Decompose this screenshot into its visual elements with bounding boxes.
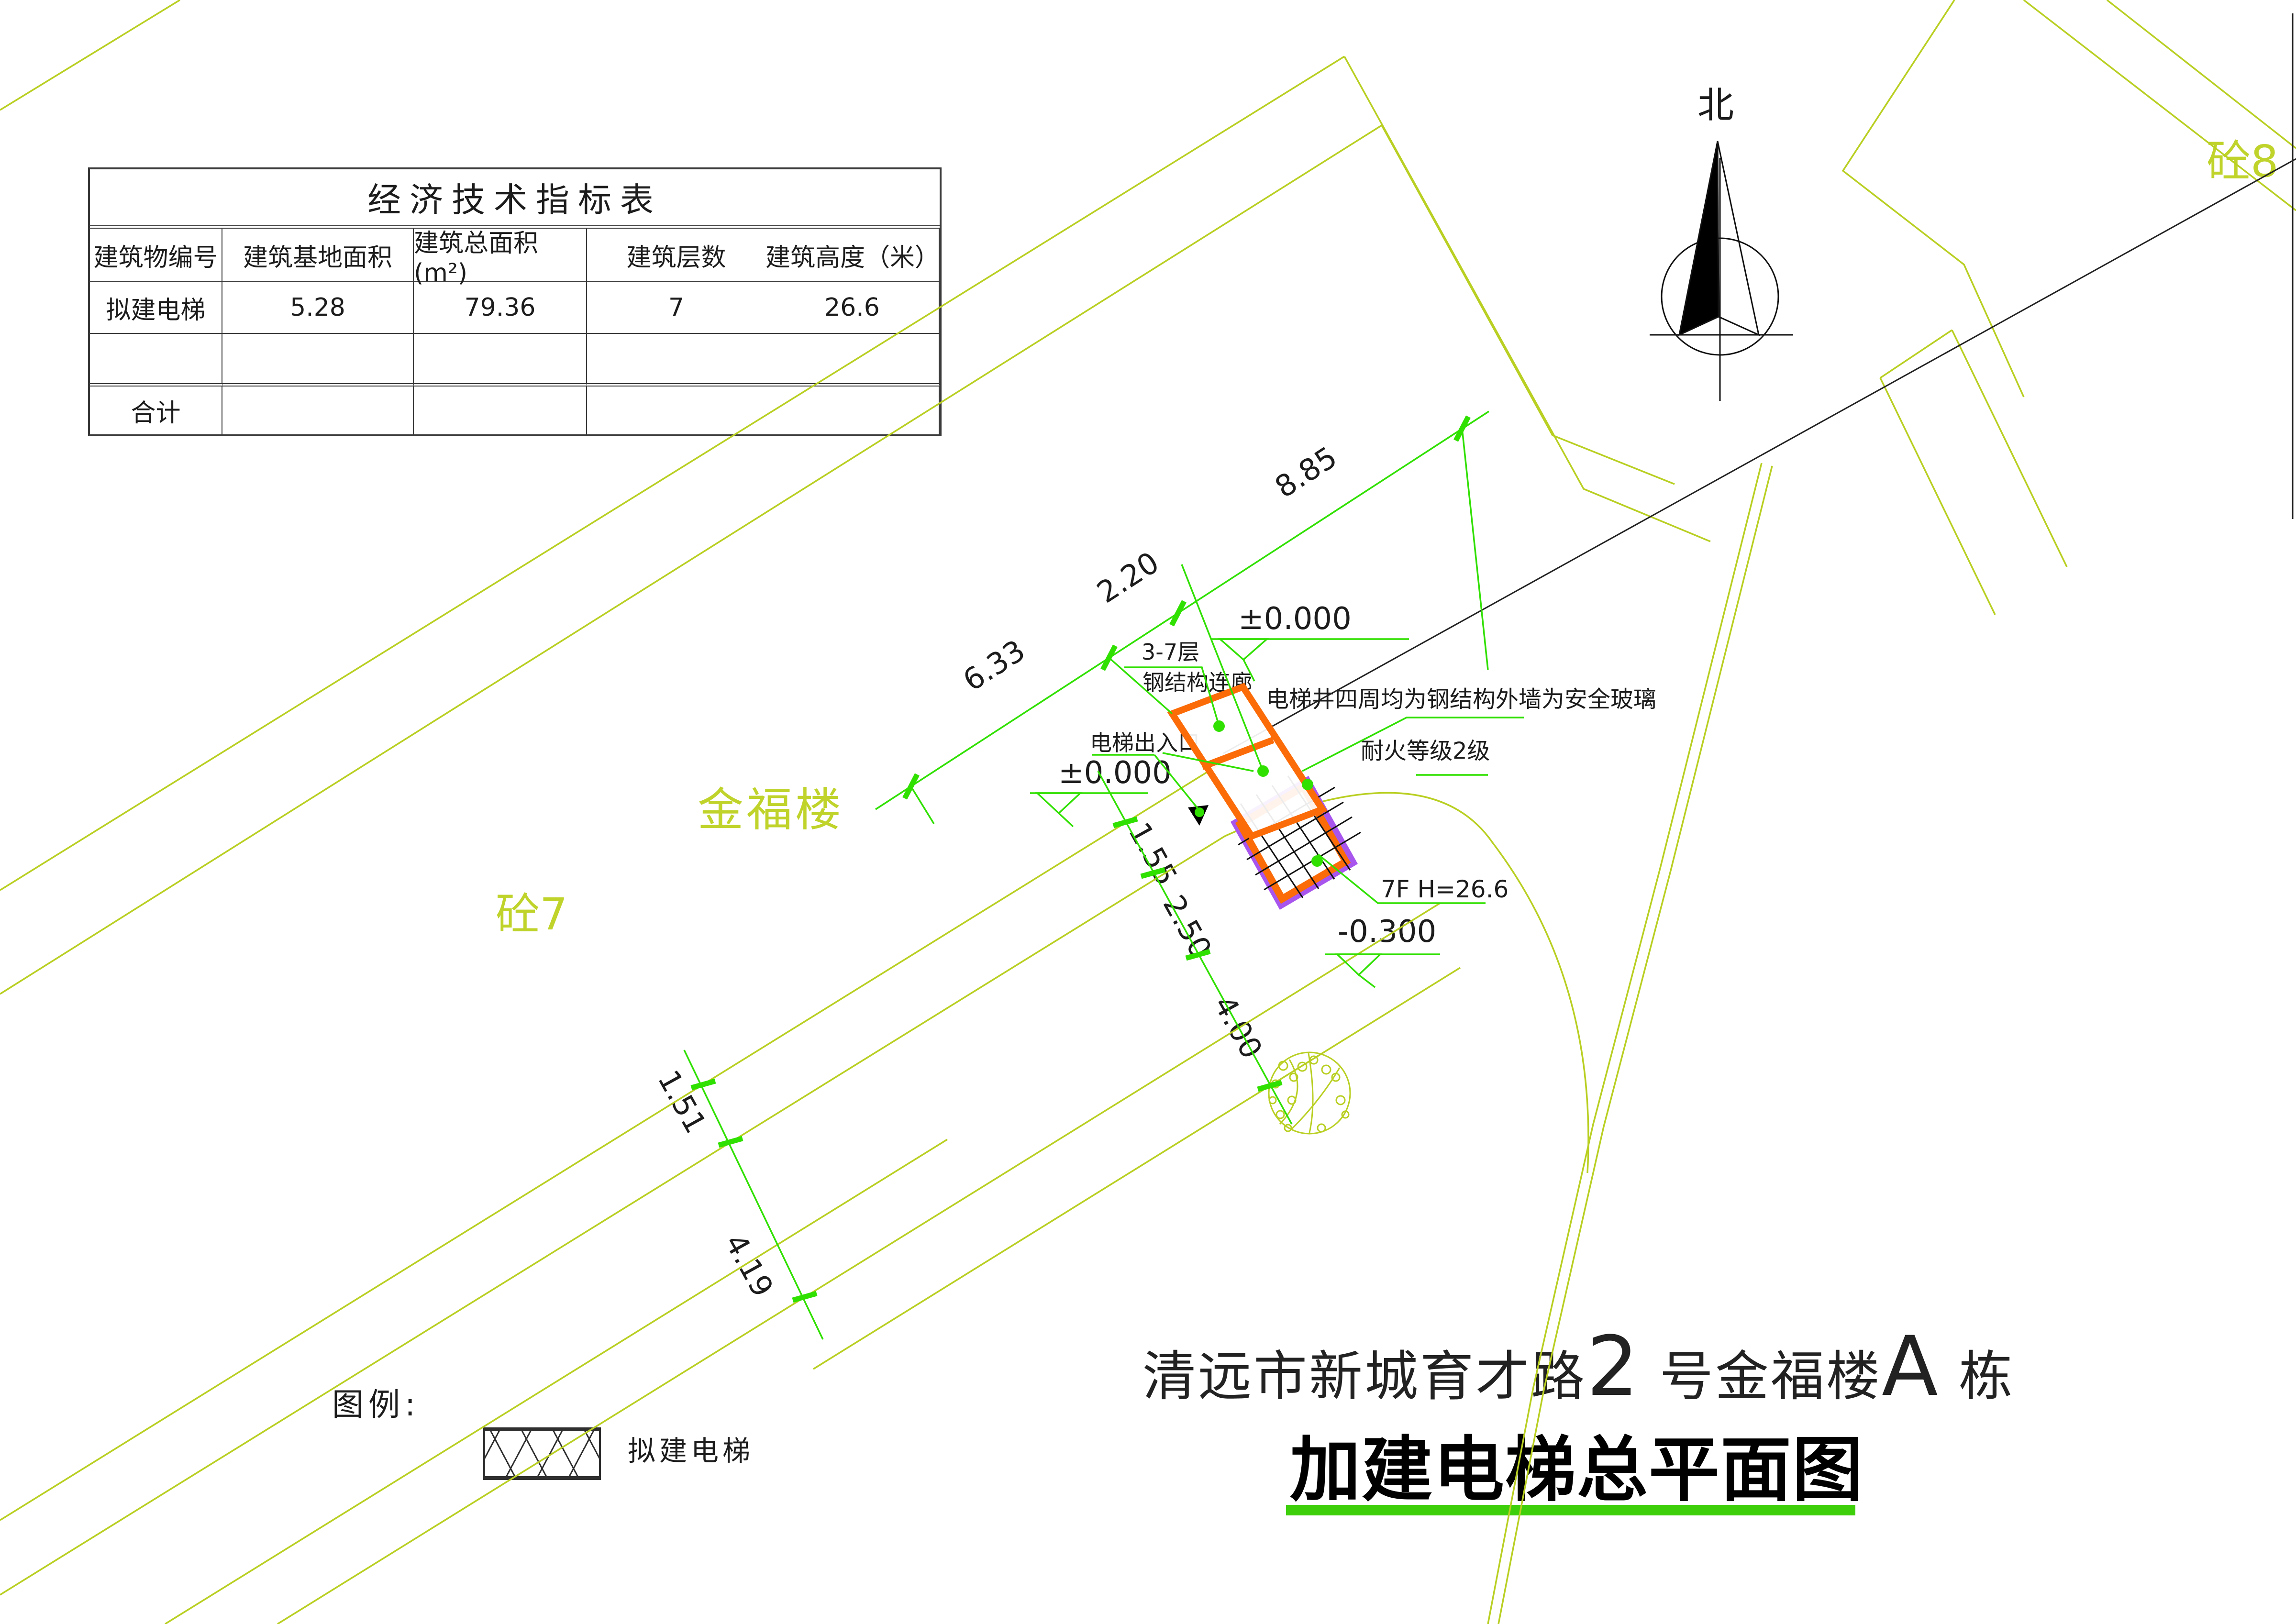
level-ground-upper: ±0.000 — [1238, 604, 1352, 634]
drawing-title-main: 加建电梯总平面图 — [1290, 1412, 1864, 1515]
north-label: 北 — [1697, 87, 1734, 123]
table-cell — [222, 387, 414, 434]
table-cell: 5.28 — [222, 282, 414, 334]
dim-4-19: 4.19 — [720, 1229, 778, 1302]
title-underline — [1286, 1505, 1855, 1515]
level-road: -0.300 — [1338, 917, 1436, 947]
col-header-base-area: 建筑基地面积 — [222, 229, 414, 282]
building-label-concrete8: 砼8 — [2207, 140, 2279, 184]
tree-symbol — [1269, 1052, 1350, 1134]
economic-indicator-table: 经济技术指标表 建筑物编号 建筑基地面积 建筑总面积(m²) 建筑层数 建筑高度… — [88, 167, 942, 436]
table-cell — [414, 334, 587, 387]
entrance-arrow-icon — [1188, 805, 1209, 826]
title-part-5: 栋 — [1940, 1346, 2015, 1408]
table-cell: 拟建电梯 — [90, 282, 222, 334]
note-height: 7F H=26.6 — [1381, 877, 1508, 901]
dim-6-33: 6.33 — [958, 635, 1030, 696]
col-header-height: 建筑高度（米） — [765, 229, 940, 282]
legend-hatch-box — [483, 1427, 601, 1480]
legend-item-label: 拟建电梯 — [628, 1437, 754, 1465]
building-label-concrete7: 砼7 — [496, 893, 568, 937]
table-cell — [587, 387, 765, 434]
title-part-4: A — [1882, 1318, 1940, 1414]
dim-1-51: 1.51 — [653, 1066, 711, 1138]
table-cell: 79.36 — [414, 282, 587, 334]
dim-1-55: 1.55 — [1124, 818, 1182, 890]
dim-4-00: 4.00 — [1209, 991, 1267, 1063]
shaft-purple-wall — [1231, 776, 1358, 910]
table-cell — [90, 334, 222, 387]
legend-label: 图例: — [332, 1389, 420, 1421]
table-cell — [765, 334, 940, 387]
table-cell — [222, 334, 414, 387]
table-cell — [587, 334, 765, 387]
title-part-3: 号金福楼 — [1641, 1346, 1882, 1408]
note-shaft-line2: 耐火等级2级 — [1361, 740, 1490, 762]
table-cell: 7 — [587, 282, 765, 334]
dim-8-85: 8.85 — [1270, 442, 1342, 503]
note-entrance: 电梯出入口 — [1090, 732, 1200, 754]
dimension-ticks — [691, 417, 1468, 1300]
building-label-jinfulou: 金福楼 — [698, 787, 844, 833]
black-lines — [1223, 13, 2296, 753]
drawing-title-address: 清远市新城育才路2 号金福楼A 栋 — [1142, 1318, 2014, 1414]
leader-dots — [1195, 720, 1323, 867]
table-total-label: 合计 — [90, 387, 222, 434]
col-header-building-id: 建筑物编号 — [90, 229, 222, 282]
shaft-inner-border — [1240, 787, 1346, 899]
shaft-grid — [1238, 776, 1361, 898]
table-title: 经济技术指标表 — [90, 169, 940, 229]
col-header-floors: 建筑层数 — [587, 229, 765, 282]
title-part-1: 清远市新城育才路 — [1142, 1346, 1586, 1408]
table-cell: 26.6 — [765, 282, 940, 334]
dim-2-50: 2.50 — [1158, 891, 1216, 963]
elevator-assembly — [1172, 687, 1361, 910]
col-header-total-area: 建筑总面积(m²) — [414, 229, 587, 282]
table-cell — [765, 387, 940, 434]
dim-2-20: 2.20 — [1092, 547, 1164, 608]
compass — [1650, 141, 1793, 401]
table-cell — [414, 387, 587, 434]
note-shaft-line1: 电梯井四周均为钢结构外墙为安全玻璃 — [1266, 688, 1656, 711]
level-ground-entry: ±0.000 — [1058, 758, 1172, 788]
site-plan-drawing: { "table": { "title": "经济技术指标表", "header… — [0, 0, 2296, 1624]
note-floors: 3-7层 — [1142, 641, 1199, 663]
note-corridor: 钢结构连廊 — [1142, 672, 1253, 694]
title-part-2: 2 — [1586, 1318, 1641, 1414]
corridor-divider — [1202, 740, 1273, 767]
